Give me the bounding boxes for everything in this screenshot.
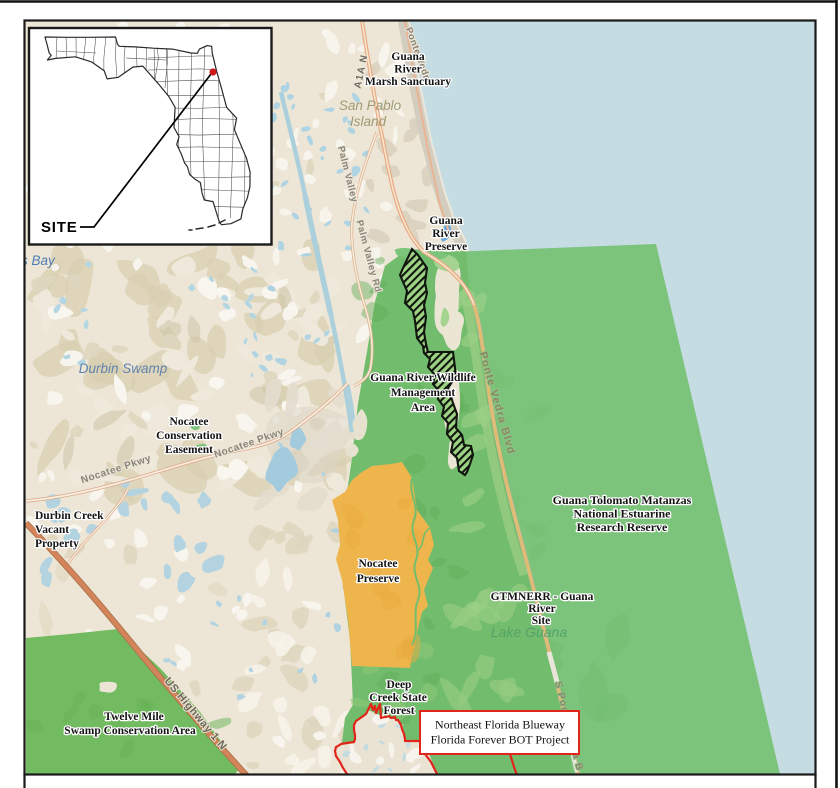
svg-text:s Bay: s Bay (21, 253, 56, 268)
svg-text:Florida Forever BOT Project: Florida Forever BOT Project (431, 733, 570, 747)
svg-text:GTMNERR - Guana: GTMNERR - Guana (491, 591, 594, 603)
svg-text:Guana: Guana (391, 51, 424, 63)
svg-text:Guana Tolomato Matanzas: Guana Tolomato Matanzas (553, 493, 692, 507)
svg-text:National Estuarine: National Estuarine (573, 507, 671, 521)
svg-text:Durbin Creek: Durbin Creek (35, 510, 104, 522)
svg-text:Guana: Guana (429, 215, 462, 227)
svg-text:Property: Property (35, 538, 79, 550)
svg-text:Site: Site (532, 615, 551, 627)
svg-text:Preserve: Preserve (425, 241, 468, 253)
svg-text:Creek State: Creek State (369, 692, 427, 704)
svg-text:River: River (432, 228, 459, 240)
svg-text:SITE: SITE (41, 219, 78, 236)
svg-text:Swamp Conservation Area: Swamp Conservation Area (64, 725, 196, 737)
svg-text:Marsh Sanctuary: Marsh Sanctuary (365, 76, 451, 88)
svg-text:Island: Island (350, 114, 387, 129)
svg-text:Deep: Deep (387, 679, 412, 691)
svg-text:River: River (528, 603, 555, 615)
svg-text:Preserve: Preserve (357, 573, 400, 585)
svg-text:Area: Area (411, 402, 435, 414)
svg-text:Conservation: Conservation (156, 430, 222, 442)
svg-text:Research Reserve: Research Reserve (577, 520, 668, 534)
svg-text:Twelve Mile: Twelve Mile (104, 711, 164, 723)
svg-text:Easement: Easement (165, 444, 213, 456)
svg-text:San Pablo: San Pablo (339, 98, 402, 113)
svg-text:Durbin Swamp: Durbin Swamp (79, 361, 168, 376)
svg-text:Forest: Forest (383, 705, 414, 717)
svg-text:Vacant: Vacant (35, 524, 69, 536)
svg-text:River: River (394, 64, 421, 76)
svg-text:Nocatee: Nocatee (359, 558, 398, 570)
svg-text:Lake Guana: Lake Guana (491, 624, 567, 640)
svg-text:Management: Management (391, 387, 456, 399)
svg-text:Northeast Florida Blueway: Northeast Florida Blueway (435, 718, 565, 732)
svg-text:Guana River Wildlife: Guana River Wildlife (370, 372, 475, 384)
svg-text:Nocatee: Nocatee (170, 416, 209, 428)
